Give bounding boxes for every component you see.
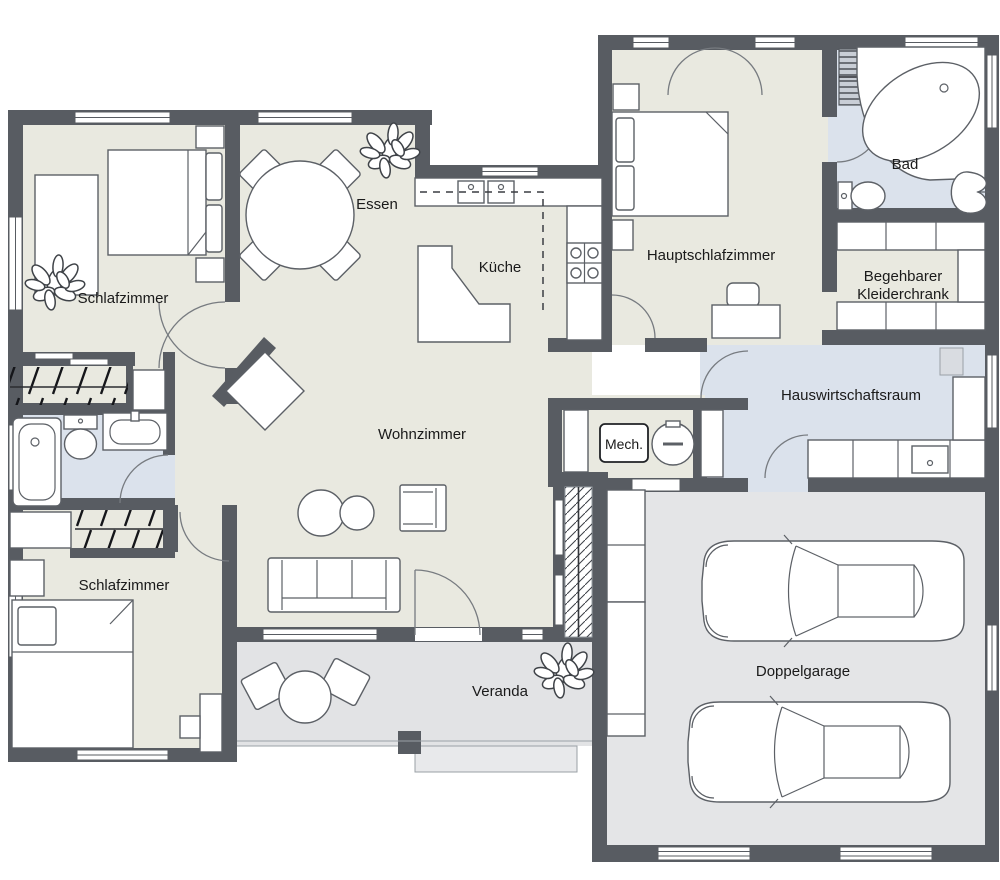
pillow <box>616 118 634 162</box>
dining-set <box>239 149 362 282</box>
dining-table <box>246 161 354 269</box>
window <box>75 112 170 123</box>
cased-opening <box>632 479 680 491</box>
veranda-step <box>415 746 577 772</box>
pillow <box>616 166 634 210</box>
tall-cabinet <box>953 377 985 440</box>
label-kueche: Küche <box>479 259 522 276</box>
label-veranda: Veranda <box>472 683 529 700</box>
door-opening <box>748 478 808 492</box>
window <box>555 500 563 555</box>
window <box>555 575 563 625</box>
pillow <box>18 607 56 645</box>
window <box>258 112 352 123</box>
window <box>987 55 997 128</box>
window <box>263 629 377 640</box>
nightstand <box>196 258 224 282</box>
bed-symbol <box>612 112 728 216</box>
window <box>987 355 997 428</box>
window <box>482 167 538 176</box>
door-opening <box>415 628 482 641</box>
pedestal-sink <box>951 172 990 213</box>
floor-plan: Schlafzimmer Essen Küche Hauptschlafzimm… <box>0 0 1000 880</box>
bench <box>612 220 633 250</box>
utility-sink <box>912 446 948 473</box>
coffee-table <box>340 496 374 530</box>
window <box>987 625 997 691</box>
label-schlafzimmer-bottom: Schlafzimmer <box>79 577 170 594</box>
car-symbol <box>688 696 950 808</box>
window <box>755 37 795 48</box>
window <box>522 629 543 640</box>
window <box>9 217 22 310</box>
dresser <box>10 512 71 548</box>
garage-door <box>840 847 932 860</box>
label-hauptschlafzimmer: Hauptschlafzimmer <box>647 247 775 264</box>
sofa <box>268 558 400 612</box>
appliance <box>940 348 963 375</box>
stove <box>567 243 602 283</box>
garage-door <box>658 847 750 860</box>
label-essen: Essen <box>356 196 398 213</box>
exterior-stairs <box>565 487 592 637</box>
closet-box <box>564 410 588 472</box>
window <box>77 750 168 760</box>
coffee-table <box>298 490 344 536</box>
armchair <box>400 485 446 531</box>
window <box>633 37 669 48</box>
closet-box <box>701 410 723 477</box>
pillow <box>206 205 222 252</box>
label-bad: Bad <box>892 156 919 173</box>
vanity-sink <box>103 411 167 450</box>
nightstand <box>613 84 639 110</box>
nightstand <box>196 126 224 148</box>
toilet <box>838 182 885 210</box>
nightstand <box>10 560 44 596</box>
label-wohnzimmer: Wohnzimmer <box>378 426 466 443</box>
closet-top <box>10 367 165 410</box>
bathtub <box>13 418 61 506</box>
label-kleiderschrank-2: Kleiderchrank <box>857 286 949 303</box>
label-schlafzimmer-top: Schlafzimmer <box>78 290 169 307</box>
label-hauswirtschaftsraum: Hauswirtschaftsraum <box>781 387 921 404</box>
closet-bottom <box>75 510 163 548</box>
linen-cabinet <box>133 370 165 410</box>
door-opening <box>822 292 837 330</box>
label-mech: Mech. <box>605 436 643 452</box>
patio-table <box>279 671 331 723</box>
garage-storage <box>607 490 645 736</box>
veranda-post <box>398 731 421 754</box>
bed-symbol <box>108 150 222 255</box>
car-symbol <box>702 535 964 647</box>
toilet <box>64 415 97 459</box>
label-kleiderschrank-1: Begehbarer <box>864 268 942 285</box>
pillow <box>206 153 222 200</box>
label-doppelgarage: Doppelgarage <box>756 663 850 680</box>
floor-plan-page: Schlafzimmer Essen Küche Hauptschlafzimm… <box>0 0 1000 880</box>
bed-symbol <box>12 600 133 748</box>
